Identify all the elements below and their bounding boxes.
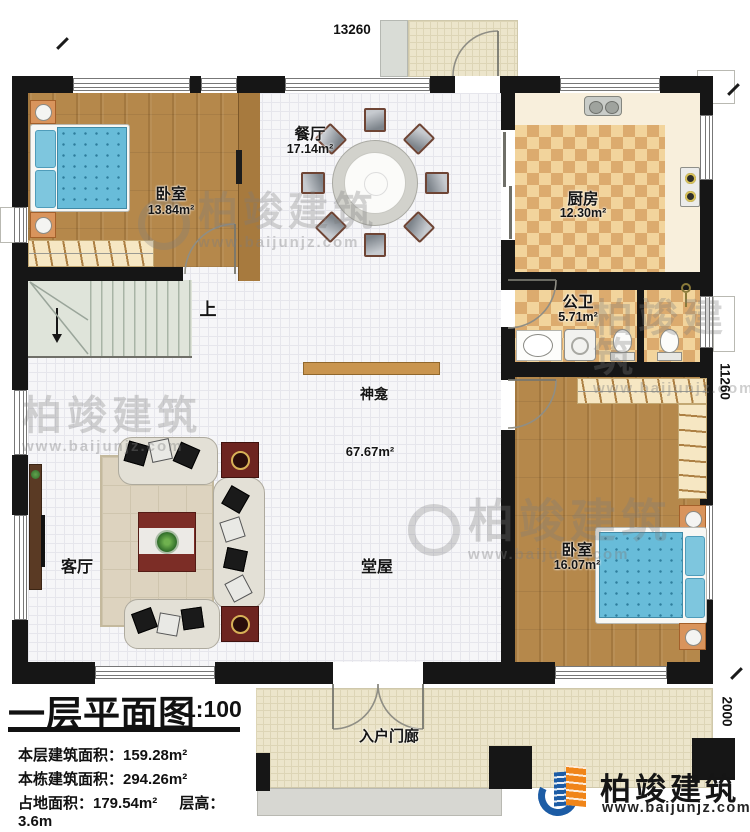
title-underline bbox=[8, 727, 240, 732]
nightstand bbox=[30, 100, 56, 124]
room-label-bedroom1: 卧室 bbox=[131, 186, 211, 203]
cushion bbox=[148, 438, 173, 463]
dining-chair bbox=[364, 233, 386, 257]
window bbox=[14, 390, 27, 455]
stat-area: 占地面积：179.54m² bbox=[18, 795, 157, 812]
stair-arrow-stem bbox=[56, 308, 58, 334]
wall bbox=[12, 455, 28, 515]
nightstand bbox=[679, 623, 706, 650]
tv-on-wall bbox=[236, 150, 242, 184]
label-stairs-up: 上 bbox=[196, 301, 220, 320]
dining-chair bbox=[364, 108, 386, 132]
burner bbox=[685, 191, 696, 202]
brand-logo-icon bbox=[538, 764, 592, 820]
room-label-hall: 堂屋 bbox=[337, 559, 417, 577]
mattress bbox=[57, 127, 127, 209]
plan-scale: 1:100 bbox=[183, 696, 242, 723]
exterior-sill-right bbox=[713, 296, 735, 352]
wardrobe bbox=[577, 378, 707, 404]
toilet bbox=[610, 352, 635, 361]
wardrobe bbox=[678, 404, 707, 499]
back-porch bbox=[408, 20, 518, 77]
window bbox=[14, 207, 27, 243]
plant-small bbox=[31, 470, 40, 479]
cushion bbox=[181, 607, 205, 631]
sink-basin bbox=[589, 101, 603, 114]
coffee-table bbox=[138, 512, 196, 572]
stove bbox=[680, 167, 700, 207]
window bbox=[560, 78, 660, 91]
sink-basin bbox=[605, 101, 619, 114]
staircase bbox=[28, 280, 192, 358]
cushion bbox=[223, 547, 248, 572]
room-label-bedroom2: 卧室 bbox=[537, 542, 617, 559]
wall bbox=[500, 76, 560, 93]
shower-hose bbox=[685, 293, 687, 307]
washer-drum bbox=[571, 337, 589, 355]
stair-arrow-head bbox=[52, 334, 62, 343]
toilet bbox=[613, 329, 632, 353]
room-label-bathroom: 公卫 bbox=[538, 294, 618, 311]
stat-line-3: 占地面积：179.54m² 层高：3.6m bbox=[18, 792, 256, 830]
side-table bbox=[221, 442, 259, 478]
dimension-right: 11260 bbox=[718, 352, 733, 412]
wall bbox=[215, 662, 333, 684]
bath-stall-partition bbox=[637, 277, 644, 362]
stat-line-1: 本层建筑面积：159.28m² bbox=[18, 744, 187, 765]
brand-website: www.baijunjz.com bbox=[602, 800, 750, 816]
room-label-living: 客厅 bbox=[37, 559, 117, 577]
logo-building-orange bbox=[566, 765, 586, 807]
washing-machine bbox=[564, 329, 596, 361]
pillow bbox=[35, 130, 56, 168]
floor-plan: 柏竣建筑 www.baijunjz.com 柏竣建筑 www.baijunjz.… bbox=[0, 0, 750, 832]
bedroom2-floor bbox=[515, 377, 700, 668]
window bbox=[555, 666, 667, 679]
wall bbox=[430, 76, 455, 93]
shrine-shelf bbox=[303, 362, 440, 375]
bath-sink bbox=[523, 334, 553, 357]
burner bbox=[685, 173, 696, 184]
dimension-tick bbox=[730, 667, 743, 680]
pillow bbox=[685, 536, 705, 576]
dimension-top: 13260 bbox=[312, 22, 392, 37]
pillow bbox=[685, 578, 705, 618]
window bbox=[700, 115, 713, 180]
entry-door-opening bbox=[333, 662, 423, 684]
window bbox=[73, 78, 190, 91]
dining-chair bbox=[301, 172, 325, 194]
wall bbox=[501, 430, 515, 668]
plant bbox=[157, 532, 177, 552]
room-area-bedroom1: 13.84m² bbox=[131, 204, 211, 218]
brand-logo: 柏竣建筑 www.baijunjz.com bbox=[538, 764, 750, 824]
wardrobe bbox=[28, 240, 154, 267]
toilet bbox=[660, 329, 679, 353]
window bbox=[700, 296, 713, 348]
wall bbox=[12, 267, 183, 281]
hand-shower bbox=[681, 283, 691, 293]
wall bbox=[501, 93, 515, 130]
wall bbox=[237, 76, 285, 93]
wall bbox=[190, 76, 201, 93]
sliding-door-panel bbox=[509, 186, 512, 239]
dimension-tick bbox=[56, 37, 69, 50]
kitchen-sink bbox=[584, 96, 622, 116]
room-area-bathroom: 5.71m² bbox=[538, 311, 618, 325]
room-area-kitchen: 12.30m² bbox=[543, 207, 623, 221]
window bbox=[95, 666, 215, 679]
dining-table-center bbox=[364, 172, 388, 196]
wall bbox=[12, 243, 28, 390]
room-area-hall: 67.67m² bbox=[330, 445, 410, 459]
window bbox=[14, 515, 27, 620]
toilet bbox=[657, 352, 682, 361]
cushion bbox=[156, 612, 180, 636]
window bbox=[285, 78, 430, 91]
wall bbox=[700, 76, 713, 115]
stat-line-2: 本栋建筑面积：294.26m² bbox=[18, 768, 187, 789]
window bbox=[201, 78, 237, 91]
wall bbox=[501, 362, 713, 377]
wall bbox=[12, 76, 28, 207]
wall bbox=[12, 662, 95, 684]
room-area-bedroom2: 16.07m² bbox=[537, 559, 617, 573]
pillar bbox=[489, 746, 532, 789]
title-block: 一层平面图 1:100 本层建筑面积：159.28m² 本栋建筑面积：294.2… bbox=[0, 684, 256, 832]
room-area-dining: 17.14m² bbox=[270, 143, 350, 157]
dimension-bottom-right: 2000 bbox=[720, 682, 735, 742]
room-label-dining: 餐厅 bbox=[270, 126, 350, 143]
sliding-door-panel bbox=[503, 132, 506, 187]
dining-chair bbox=[425, 172, 449, 194]
porch-steps bbox=[257, 788, 502, 816]
nightstand bbox=[30, 212, 56, 238]
side-table bbox=[221, 606, 259, 642]
room-label-entry-porch: 入户门廊 bbox=[329, 729, 449, 746]
label-shrine: 神龛 bbox=[344, 387, 404, 402]
wall bbox=[423, 662, 555, 684]
back-door-opening bbox=[455, 76, 500, 93]
wall bbox=[667, 662, 713, 684]
bedroom1-right-wall-wood bbox=[238, 93, 260, 281]
stair-treads bbox=[90, 280, 192, 356]
pillow bbox=[35, 170, 56, 208]
